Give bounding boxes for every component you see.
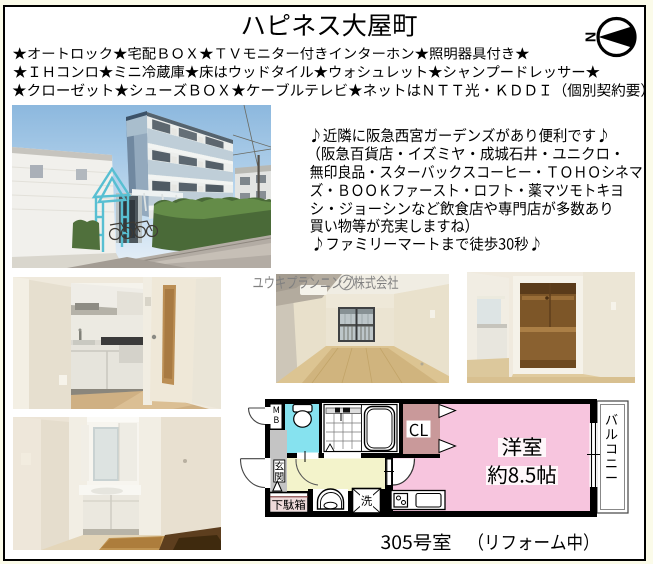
svg-text:N: N xyxy=(584,32,600,42)
